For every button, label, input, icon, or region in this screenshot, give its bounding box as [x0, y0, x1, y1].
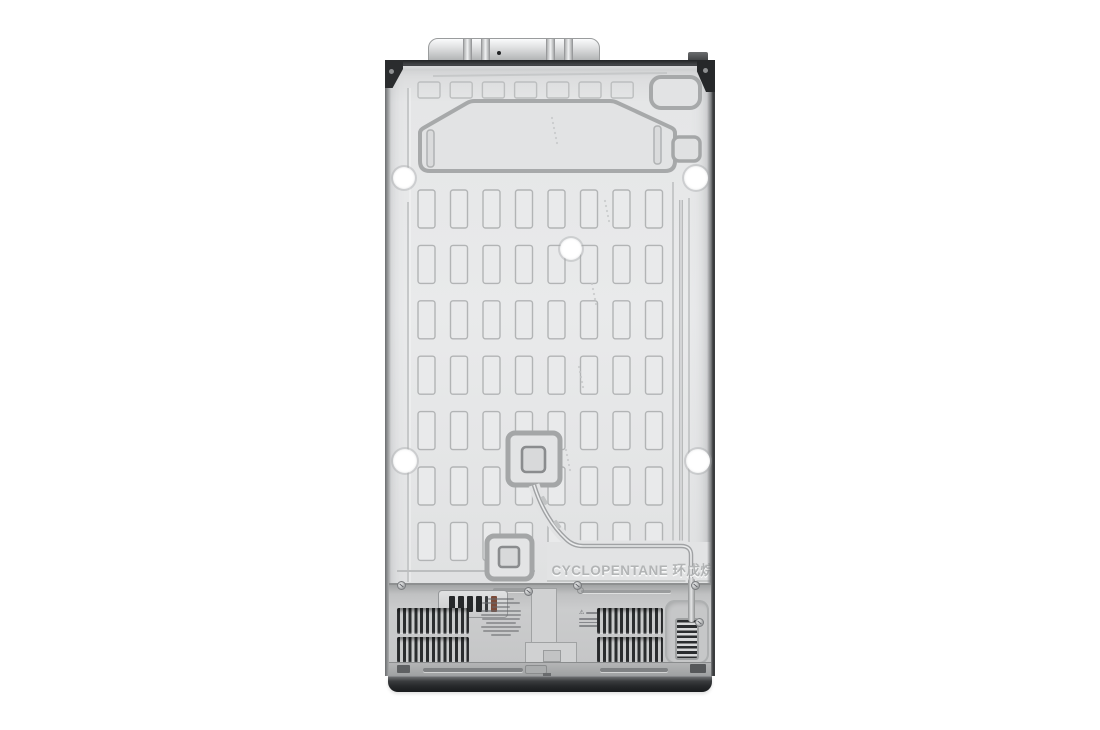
embossed-slot — [646, 190, 663, 228]
top-crease-line — [433, 73, 667, 76]
vent-grille-row — [397, 637, 469, 663]
embossed-slot — [451, 301, 468, 339]
rating-label — [478, 598, 524, 636]
embossed-slot — [516, 301, 533, 339]
embossed-slot — [451, 522, 468, 560]
center-duct — [531, 588, 557, 644]
rating-label-line — [483, 630, 519, 632]
bottom-latch-left — [397, 665, 410, 673]
screw-icon — [703, 68, 708, 73]
rating-label-line — [482, 618, 520, 620]
top-recess-slot-left — [427, 130, 434, 167]
embossed-slot — [451, 412, 468, 450]
emboss-dot — [604, 200, 606, 202]
bottom-slot — [423, 668, 523, 672]
lower-square-inner — [499, 547, 519, 567]
emboss-dot — [556, 142, 558, 144]
access-panel-emboss — [651, 77, 700, 108]
vent-grille-row — [597, 608, 663, 634]
emboss-dot — [553, 127, 555, 129]
emboss-dot — [582, 386, 584, 388]
embossed-slot — [613, 301, 630, 339]
embossed-slot — [581, 190, 598, 228]
embossed-slot — [613, 190, 630, 228]
embossed-slot — [646, 245, 663, 283]
embossed-slot — [451, 467, 468, 505]
embossed-slot — [483, 467, 500, 505]
emboss-dot — [593, 293, 595, 295]
mounting-hole — [686, 449, 710, 473]
embossed-slot-small — [611, 82, 633, 98]
embossed-slot — [646, 412, 663, 450]
embossed-slot — [483, 301, 500, 339]
emboss-dot — [567, 459, 569, 461]
embossed-slot — [418, 301, 435, 339]
screw-icon — [524, 587, 533, 596]
emboss-dot — [568, 464, 570, 466]
emboss-dot — [607, 215, 609, 217]
embossed-slot-small — [515, 82, 537, 98]
emboss-dot — [555, 137, 557, 139]
emboss-dot — [565, 449, 567, 451]
embossed-slot — [516, 245, 533, 283]
embossed-slot — [548, 356, 565, 394]
embossed-slot — [451, 190, 468, 228]
mounting-hole — [560, 238, 582, 260]
rating-label-line — [488, 598, 514, 600]
emboss-dot — [595, 303, 597, 305]
embossed-slot — [581, 467, 598, 505]
embossed-slot — [646, 301, 663, 339]
embossed-slot — [418, 467, 435, 505]
emboss-dot — [581, 381, 583, 383]
left-vent-grille — [397, 608, 469, 664]
emboss-dot — [579, 371, 581, 373]
emboss-dot — [552, 122, 554, 124]
emboss-dot — [554, 132, 556, 134]
bottom-latch-right — [690, 664, 706, 673]
embossed-slot — [548, 190, 565, 228]
emboss-dot — [578, 366, 580, 368]
embossed-slot — [646, 356, 663, 394]
embossed-slot-small — [450, 82, 472, 98]
duct-foot-slot — [543, 650, 561, 662]
upper-square-inner — [522, 447, 545, 472]
bottom-mounting-strip — [389, 662, 711, 676]
embossed-slot — [516, 356, 533, 394]
embossed-slot — [613, 467, 630, 505]
emboss-dot — [592, 288, 594, 290]
warning-triangle-icon: ⚠ — [579, 610, 584, 616]
embossed-slot — [483, 412, 500, 450]
mounting-hole — [393, 449, 417, 473]
screw-icon — [389, 69, 394, 74]
compressor-access-cover: ⚠ — [389, 583, 711, 662]
screw-icon — [397, 581, 406, 590]
embossed-slot-small — [418, 82, 440, 98]
embossed-slot — [548, 301, 565, 339]
embossed-slot — [483, 245, 500, 283]
emboss-dot — [591, 283, 593, 285]
embossed-slot — [418, 245, 435, 283]
emboss-dot — [606, 210, 608, 212]
top-recess-panel — [420, 101, 675, 171]
embossed-slot — [516, 190, 533, 228]
top-recess-slot-right — [654, 126, 661, 164]
product-photo-canvas: CYCLOPENTANE 环戊烷 CYCLOPENTANE 环戊烷 — [0, 0, 1100, 730]
emboss-dot — [569, 469, 571, 471]
emboss-dot — [608, 220, 610, 222]
embossed-slot-small — [547, 82, 569, 98]
bottom-slot — [600, 668, 668, 672]
emboss-dot — [580, 376, 582, 378]
mounting-hole — [684, 166, 708, 190]
embossed-slot — [613, 245, 630, 283]
seam-vent-slot — [581, 590, 671, 593]
embossed-slot — [483, 356, 500, 394]
screw-icon — [695, 618, 704, 627]
embossed-slot — [418, 522, 435, 560]
rating-label-line — [491, 634, 511, 636]
embossed-slot — [613, 412, 630, 450]
emboss-dot — [605, 205, 607, 207]
small-square-emboss — [673, 137, 700, 161]
embossed-slot — [646, 467, 663, 505]
embossed-slot-small — [579, 82, 601, 98]
screw-icon — [573, 581, 582, 590]
rating-label-line — [481, 614, 521, 616]
base-plinth — [388, 676, 712, 692]
vent-grille-row — [397, 608, 469, 634]
rating-label-line — [486, 622, 516, 624]
vent-grille-row — [597, 637, 663, 663]
embossed-slot — [613, 356, 630, 394]
embossed-slot — [483, 190, 500, 228]
embossed-slot — [418, 412, 435, 450]
rating-label-line — [482, 602, 520, 604]
embossed-slot — [581, 301, 598, 339]
screw-icon — [691, 581, 700, 590]
emboss-dot — [566, 454, 568, 456]
emboss-dot — [594, 298, 596, 300]
rating-label-line — [481, 626, 521, 628]
rating-label-line — [481, 610, 521, 612]
refrigerator-back-view: CYCLOPENTANE 环戊烷 CYCLOPENTANE 环戊烷 — [385, 30, 715, 692]
embossed-slot — [451, 356, 468, 394]
rating-label-line — [492, 606, 510, 608]
embossed-slot — [418, 190, 435, 228]
embossed-slot-small — [482, 82, 504, 98]
mounting-hole — [393, 167, 415, 189]
right-vent-grille — [597, 608, 663, 664]
refrigerant-embossed-text: CYCLOPENTANE 环戊烷 — [551, 562, 714, 578]
embossed-slot — [581, 245, 598, 283]
embossed-slot — [581, 412, 598, 450]
embossed-slot — [581, 356, 598, 394]
emboss-dot — [551, 117, 553, 119]
embossed-slot — [418, 356, 435, 394]
embossed-slot — [451, 245, 468, 283]
